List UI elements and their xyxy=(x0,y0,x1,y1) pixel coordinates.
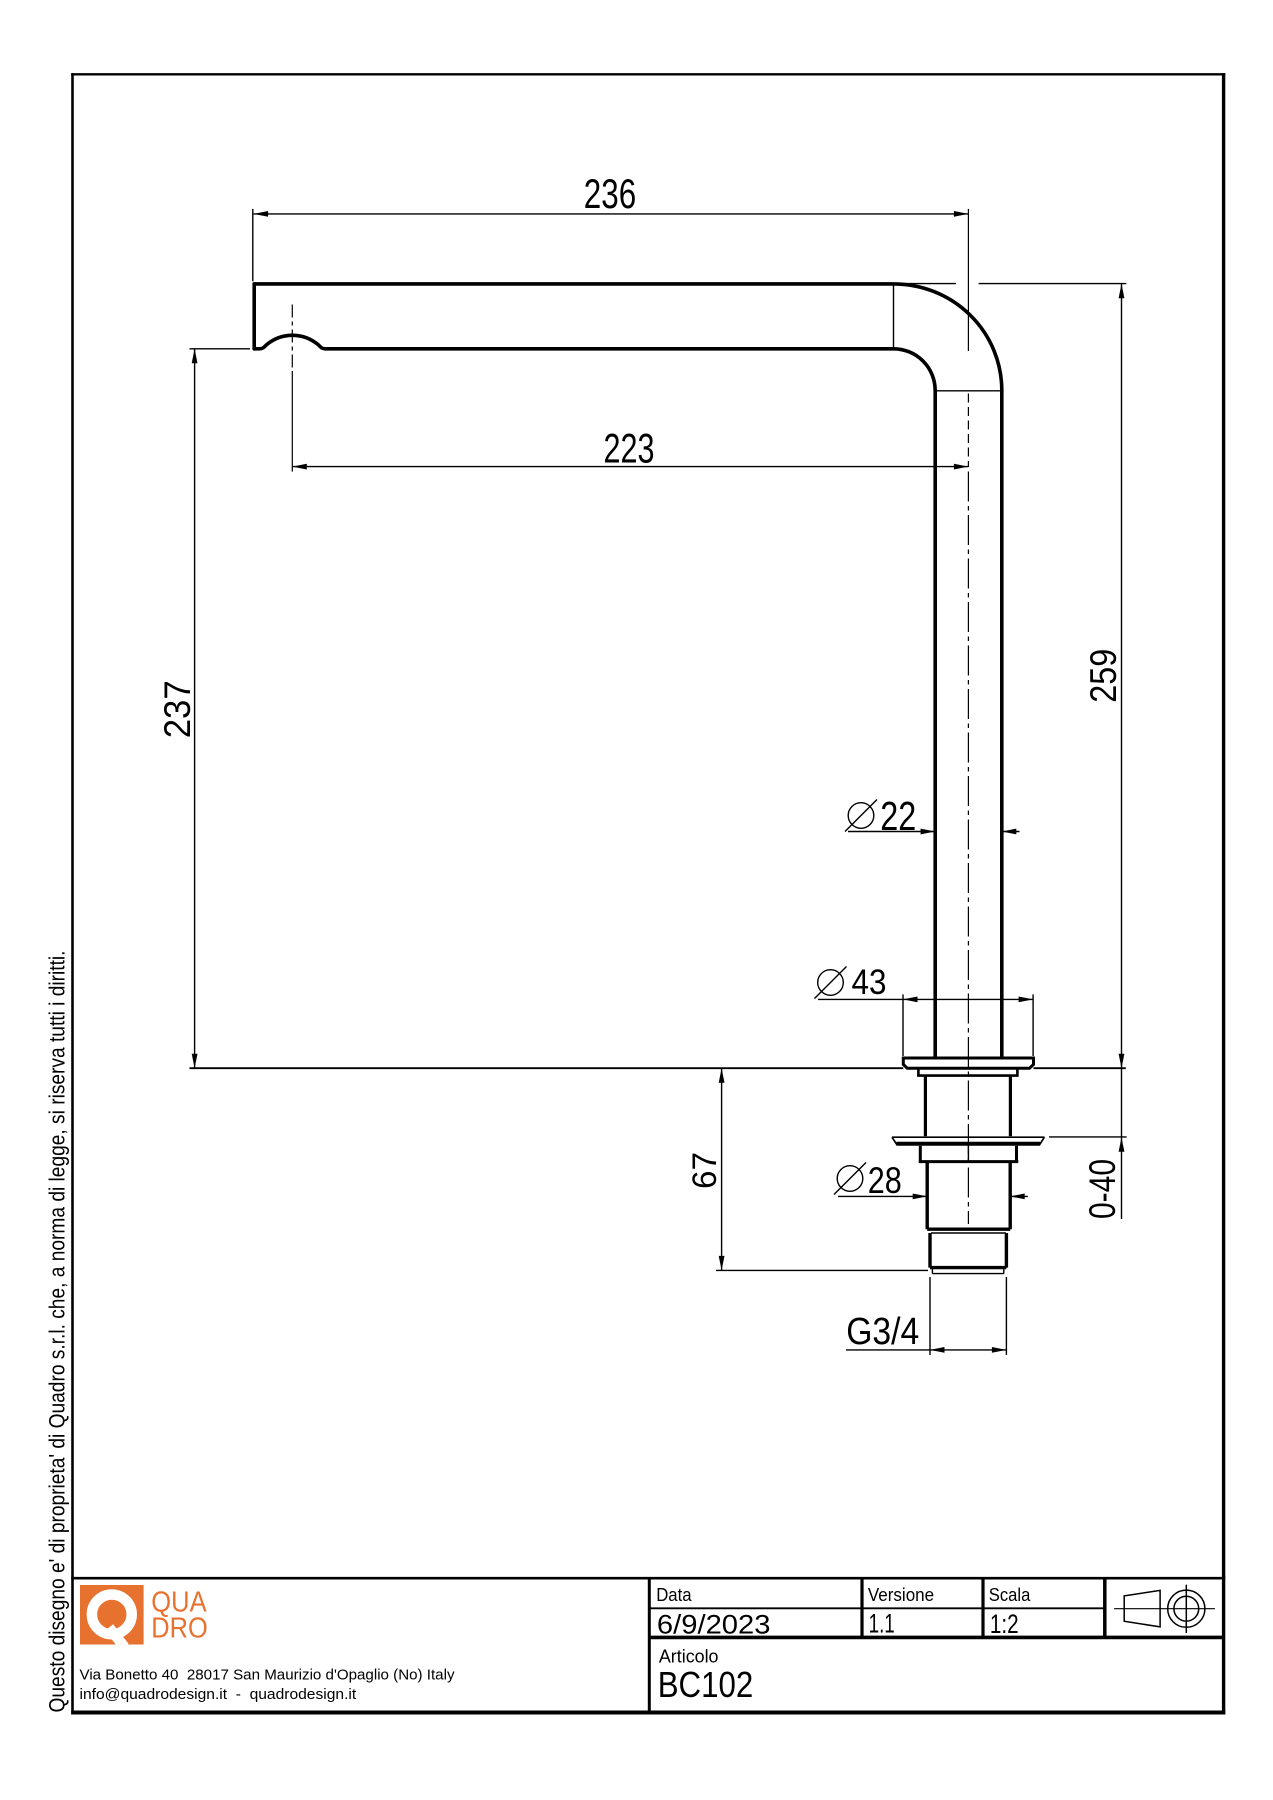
svg-text:0-40: 0-40 xyxy=(1082,1159,1123,1219)
svg-text:Data: Data xyxy=(656,1584,692,1605)
svg-text:G3/4: G3/4 xyxy=(846,1311,919,1353)
svg-text:Versione: Versione xyxy=(868,1584,934,1605)
svg-text:DRO: DRO xyxy=(151,1613,208,1645)
svg-text:6/9/2023: 6/9/2023 xyxy=(657,1610,771,1640)
svg-text:22: 22 xyxy=(880,793,916,839)
svg-text:259: 259 xyxy=(1083,649,1124,703)
svg-text:BC102: BC102 xyxy=(658,1664,754,1705)
svg-text:237: 237 xyxy=(157,680,198,738)
svg-text:1:2: 1:2 xyxy=(990,1609,1019,1639)
svg-text:1.1: 1.1 xyxy=(869,1608,895,1638)
svg-text:Questo disegno e' di proprieta: Questo disegno e' di proprieta' di Quadr… xyxy=(45,951,70,1713)
svg-text:223: 223 xyxy=(604,424,655,471)
svg-text:info@quadrodesign.it - quadr: info@quadrodesign.it - quadrodesign.it xyxy=(80,1686,357,1703)
svg-text:Via Bonetto 40 28017 San Maur: Via Bonetto 40 28017 San Maurizio d'Opag… xyxy=(80,1667,455,1684)
svg-text:67: 67 xyxy=(686,1152,724,1189)
svg-text:43: 43 xyxy=(852,963,887,1002)
svg-text:Scala: Scala xyxy=(989,1584,1031,1605)
svg-text:28: 28 xyxy=(868,1160,902,1201)
svg-text:236: 236 xyxy=(584,170,636,217)
